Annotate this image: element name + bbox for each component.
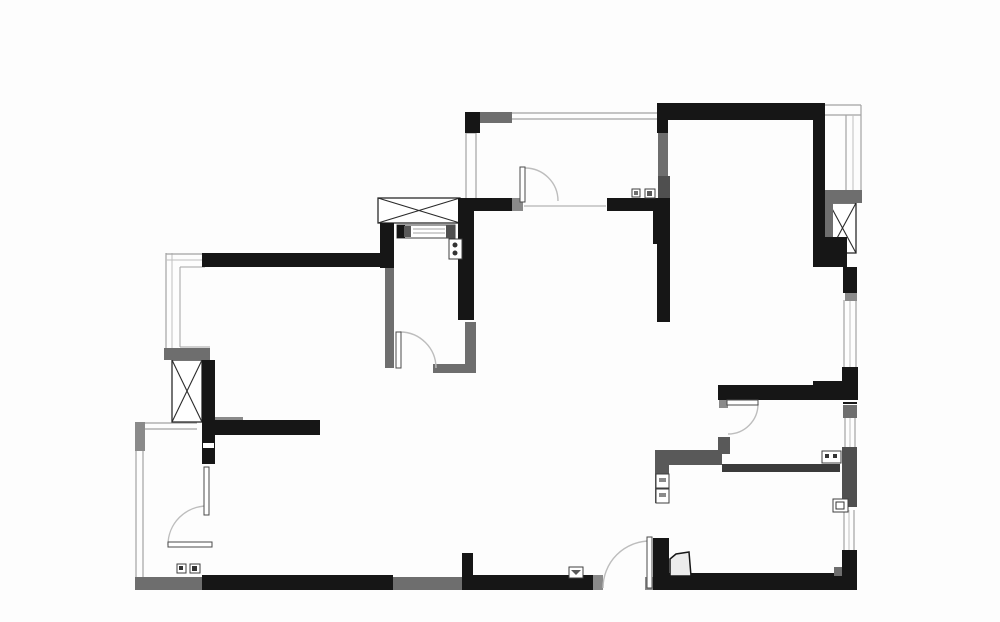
door-leaf	[520, 167, 525, 202]
wall	[202, 253, 390, 267]
wall-fixture-box	[449, 239, 462, 259]
wall-gray-cap	[164, 348, 210, 360]
door-arc	[603, 541, 650, 588]
wall-gray	[393, 577, 462, 590]
wall	[813, 237, 847, 267]
wall-gray	[842, 447, 857, 507]
door-leaf	[727, 400, 758, 405]
wall-gray-cap	[593, 575, 603, 590]
wall	[843, 402, 857, 404]
door-leaf	[204, 467, 209, 515]
wall	[465, 112, 480, 133]
wall	[653, 198, 670, 244]
wall	[657, 242, 670, 322]
wall-gray-cap	[135, 422, 145, 451]
wall-fixture-mark	[647, 191, 652, 196]
wall-fixture-mark	[833, 454, 837, 458]
door-arc	[728, 404, 758, 434]
door-arc	[168, 506, 207, 545]
wall-gray	[843, 405, 857, 418]
wall	[213, 420, 320, 435]
corner-wedge	[670, 552, 691, 576]
wall-gray	[718, 437, 730, 454]
wall	[380, 223, 394, 268]
wall-fixture-dot	[453, 243, 458, 248]
wall-fixture-mark	[825, 454, 829, 458]
wall-gray	[825, 200, 833, 238]
shaft-column-x	[378, 198, 460, 223]
door-leaf	[168, 542, 212, 547]
wall	[202, 575, 393, 590]
cabinet-fixture-cap	[446, 225, 455, 238]
wall-gray	[433, 364, 473, 373]
door-leaf	[396, 332, 401, 368]
floor-plan-canvas	[0, 0, 1000, 622]
wall-fixture-mark	[634, 191, 638, 195]
wall-gray	[658, 133, 668, 176]
door-leaf	[647, 537, 652, 588]
wall	[718, 385, 857, 400]
cabinet-fixture-panel	[404, 226, 411, 237]
wall	[843, 267, 857, 293]
wall-gray	[385, 268, 394, 368]
wall	[657, 103, 668, 133]
wall-fixture-box	[822, 451, 841, 463]
wall-gray	[658, 176, 670, 200]
floor-plan-svg	[0, 0, 1000, 622]
wall	[607, 198, 653, 211]
wall-fixture-mark	[834, 567, 842, 576]
wall-fixture-box	[836, 502, 844, 509]
door-arc	[525, 168, 558, 201]
wall-fixture-mark	[192, 566, 197, 571]
wall	[657, 103, 825, 120]
wall-fixture-dot	[453, 251, 458, 256]
wall	[202, 360, 215, 464]
wall-notch	[203, 443, 214, 448]
wall	[813, 381, 843, 386]
wall	[653, 538, 669, 578]
wall-gray	[135, 577, 202, 590]
wall-gray-cap	[480, 112, 512, 123]
wall-fixture-mark	[179, 566, 183, 570]
shaft-column-x	[172, 360, 202, 422]
wall	[462, 553, 473, 578]
wall-fixture-mark	[659, 493, 666, 497]
wall-fixture-mark	[659, 478, 666, 482]
partition-thin-wall	[722, 464, 840, 472]
door-arc	[400, 332, 436, 368]
cabinet-fixture-cap	[397, 225, 405, 238]
